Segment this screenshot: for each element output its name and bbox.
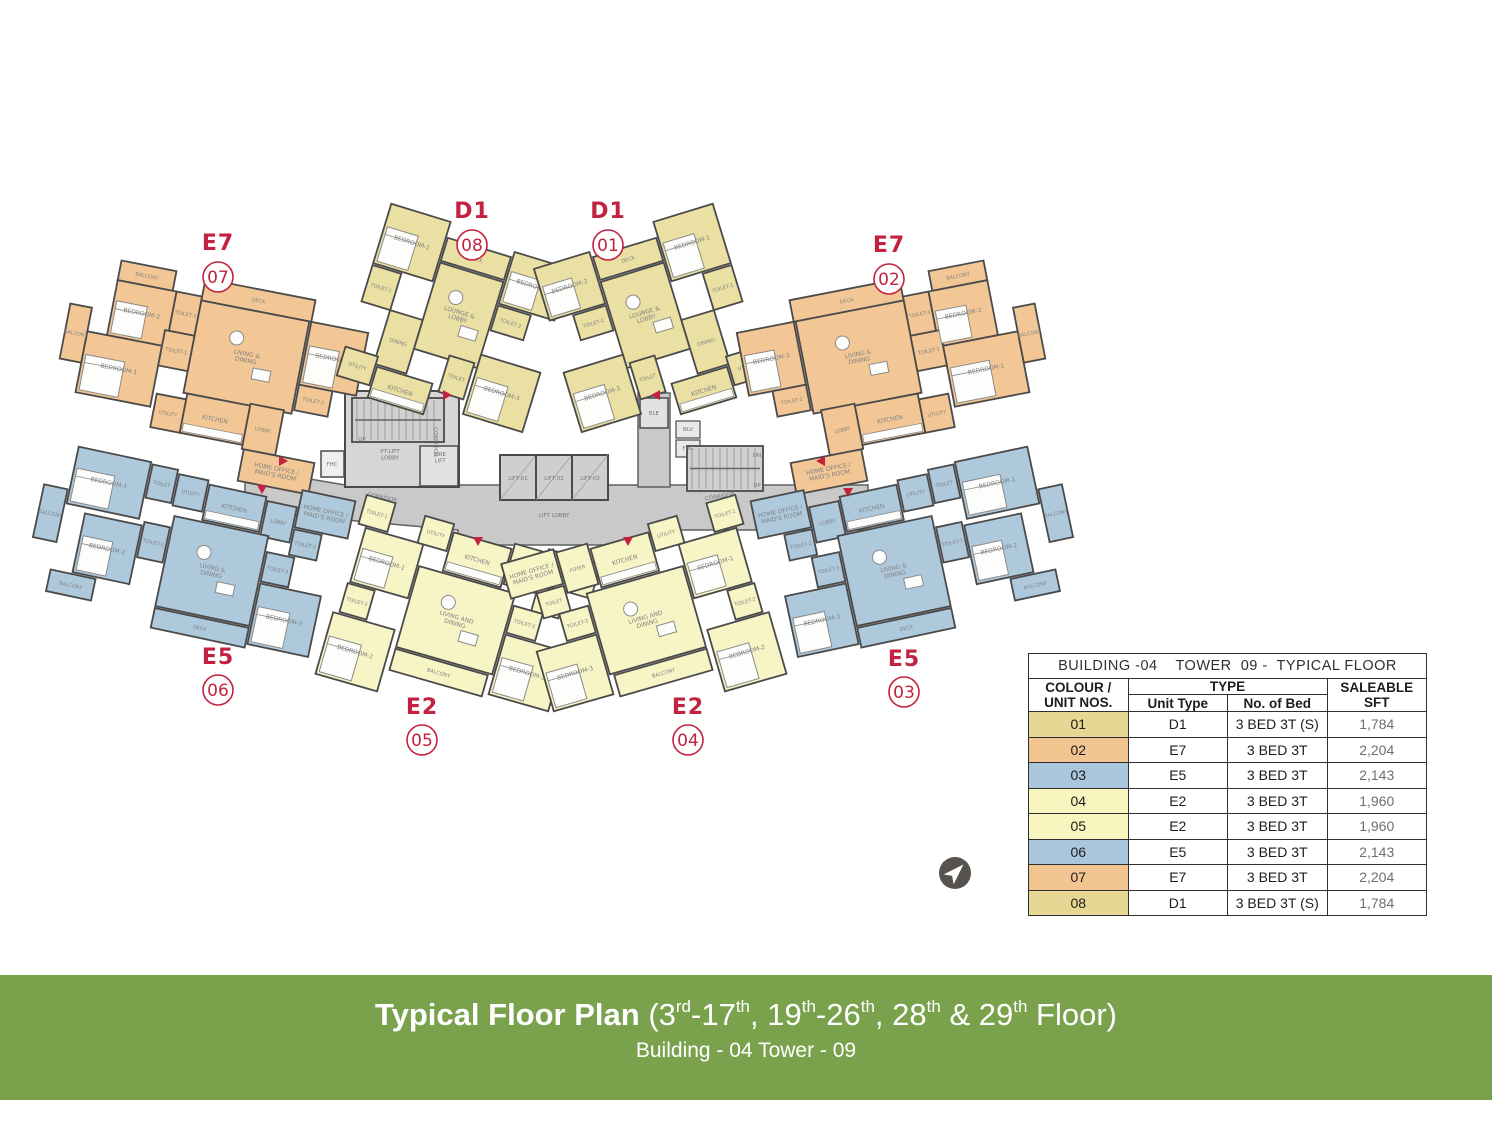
floor-ordinal-suffix: th [1013,997,1027,1016]
cell-saleable-sft: 1,784 [1327,890,1427,916]
plan-label-fhc: FHC [326,462,337,468]
cell-unit-number: 01 [1029,712,1129,738]
banner-heading: Typical Floor Plan (3rd-17th, 19th-26th,… [0,975,1492,1032]
footer-banner: Typical Floor Plan (3rd-17th, 19th-26th,… [0,975,1492,1100]
unit-number-01: 01 [597,236,619,256]
cell-unit-type: E2 [1128,814,1228,840]
banner-subtitle: Building - 04 Tower - 09 [0,1039,1492,1063]
col-header-no-of-bed: No. of Bed [1228,695,1328,712]
plan-label-lift-03: LIFT-03 [580,476,600,482]
table-row-unit-03: 03E53 BED 3T2,143 [1029,763,1427,789]
col-header-saleable: SALEABLE SFT [1327,679,1427,712]
unit-label-07: E7 [202,231,234,256]
col-header-type-group: TYPE [1128,679,1327,695]
plan-label-lift-lobby: LIFT LOBBY [539,513,570,519]
floor-ordinal-suffix: th [927,997,941,1016]
plan-label-up: UP [753,483,761,489]
unit-label-02: E7 [873,233,905,258]
bed [79,354,125,397]
table-row-unit-05: 05E23 BED 3T1,960 [1029,814,1427,840]
plan-label-lift-02: LIFT-02 [544,476,564,482]
unit-number-05: 05 [411,731,433,751]
cell-unit-type: E7 [1128,737,1228,763]
col-header-unit-type: Unit Type [1128,695,1228,712]
bed [111,301,148,339]
unit-label-01: D1 [590,199,626,224]
cell-unit-number: 06 [1029,839,1129,865]
cell-unit-type: E5 [1128,839,1228,865]
floor-ordinal-suffix: th [861,997,875,1016]
page: { "banner": { "bg": "#7aa24d", "heading_… [0,0,1500,1125]
floor-range-text: , 19 [750,997,802,1032]
bed [76,536,113,576]
cell-unit-type: D1 [1128,890,1228,916]
cell-unit-type: E5 [1128,763,1228,789]
table-row-unit-02: 02E73 BED 3T2,204 [1029,737,1427,763]
table-title-row: BUILDING -04 TOWER 09 - TYPICAL FLOOR [1029,654,1427,679]
cell-no-of-bed: 3 BED 3T [1228,788,1328,814]
unit-number-07: 07 [207,268,229,288]
plan-label-fhc: FHC [682,446,693,452]
plan-label-fire-lift: FIRELIFT [434,452,447,465]
unit-label-08: D1 [454,199,490,224]
cell-unit-number: 04 [1029,788,1129,814]
cell-saleable-sft: 2,204 [1327,737,1427,763]
floor-range-text: , 28 [875,997,927,1032]
banner-heading-bold: Typical Floor Plan [375,997,648,1032]
plan-label-blv: BLV [683,427,693,433]
cell-saleable-sft: 1,960 [1327,814,1427,840]
bed [251,607,290,649]
floor-ordinal-suffix: th [802,997,816,1016]
cell-unit-number: 08 [1029,890,1129,916]
cell-unit-number: 05 [1029,814,1129,840]
unit-label-05: E2 [406,695,438,720]
cell-no-of-bed: 3 BED 3T [1228,839,1328,865]
floor-range-text: & 29 [941,997,1013,1032]
cell-unit-number: 02 [1029,737,1129,763]
bed [303,346,340,388]
plan-label-lift-01: LIFT-01 [508,476,528,482]
unit-number-06: 06 [207,681,229,701]
table-header-row-1: COLOUR / UNIT NOS. TYPE SALEABLE SFT [1029,679,1427,695]
banner-heading-floors: (3rd-17th, 19th-26th, 28th & 29th Floor) [648,997,1117,1032]
floor-ordinal-suffix: th [736,997,750,1016]
cell-unit-type: D1 [1128,712,1228,738]
cell-no-of-bed: 3 BED 3T [1228,865,1328,891]
cell-unit-number: 03 [1029,763,1129,789]
cell-unit-number: 07 [1029,865,1129,891]
cell-saleable-sft: 2,143 [1327,839,1427,865]
plan-label-ele: ELE [649,411,660,417]
unit-number-08: 08 [461,236,483,256]
floor-range-text: -26 [816,997,861,1032]
cell-saleable-sft: 1,960 [1327,788,1427,814]
unit-number-04: 04 [677,731,699,751]
plan-label-dn: DN [753,453,761,459]
cell-saleable-sft: 2,143 [1327,763,1427,789]
plan-label-up: UP [358,437,366,443]
floor-range-text: Floor) [1027,997,1117,1032]
cell-saleable-sft: 2,204 [1327,865,1427,891]
table-row-unit-07: 07E73 BED 3T2,204 [1029,865,1427,891]
cell-no-of-bed: 3 BED 3T [1228,763,1328,789]
table-row-unit-04: 04E23 BED 3T1,960 [1029,788,1427,814]
cell-unit-type: E2 [1128,788,1228,814]
cell-unit-type: E7 [1128,865,1228,891]
table-row-unit-08: 08D13 BED 3T (S)1,784 [1029,890,1427,916]
unit-number-02: 02 [878,270,900,290]
cell-no-of-bed: 3 BED 3T (S) [1228,890,1328,916]
cell-no-of-bed: 3 BED 3T [1228,737,1328,763]
table-title: BUILDING -04 TOWER 09 - TYPICAL FLOOR [1029,654,1427,679]
cell-no-of-bed: 3 BED 3T [1228,814,1328,840]
unit-table: BUILDING -04 TOWER 09 - TYPICAL FLOOR CO… [1028,653,1427,916]
floor-ordinal-suffix: rd [676,997,691,1016]
col-header-unit-nos: COLOUR / UNIT NOS. [1029,679,1129,712]
bed [70,468,115,509]
unit-label-04: E2 [672,695,704,720]
floor-range-text: -17 [691,997,736,1032]
unit-number-03: 03 [893,683,915,703]
plan-label-pt-lift-lobby: PT-LIFTLOBBY [380,449,400,462]
table-row-unit-01: 01D13 BED 3T (S)1,784 [1029,712,1427,738]
floor-range-text: (3 [648,997,676,1032]
unit-label-03: E5 [888,647,920,672]
cell-no-of-bed: 3 BED 3T (S) [1228,712,1328,738]
cell-saleable-sft: 1,784 [1327,712,1427,738]
unit-label-06: E5 [202,645,234,670]
table-row-unit-06: 06E53 BED 3T2,143 [1029,839,1427,865]
